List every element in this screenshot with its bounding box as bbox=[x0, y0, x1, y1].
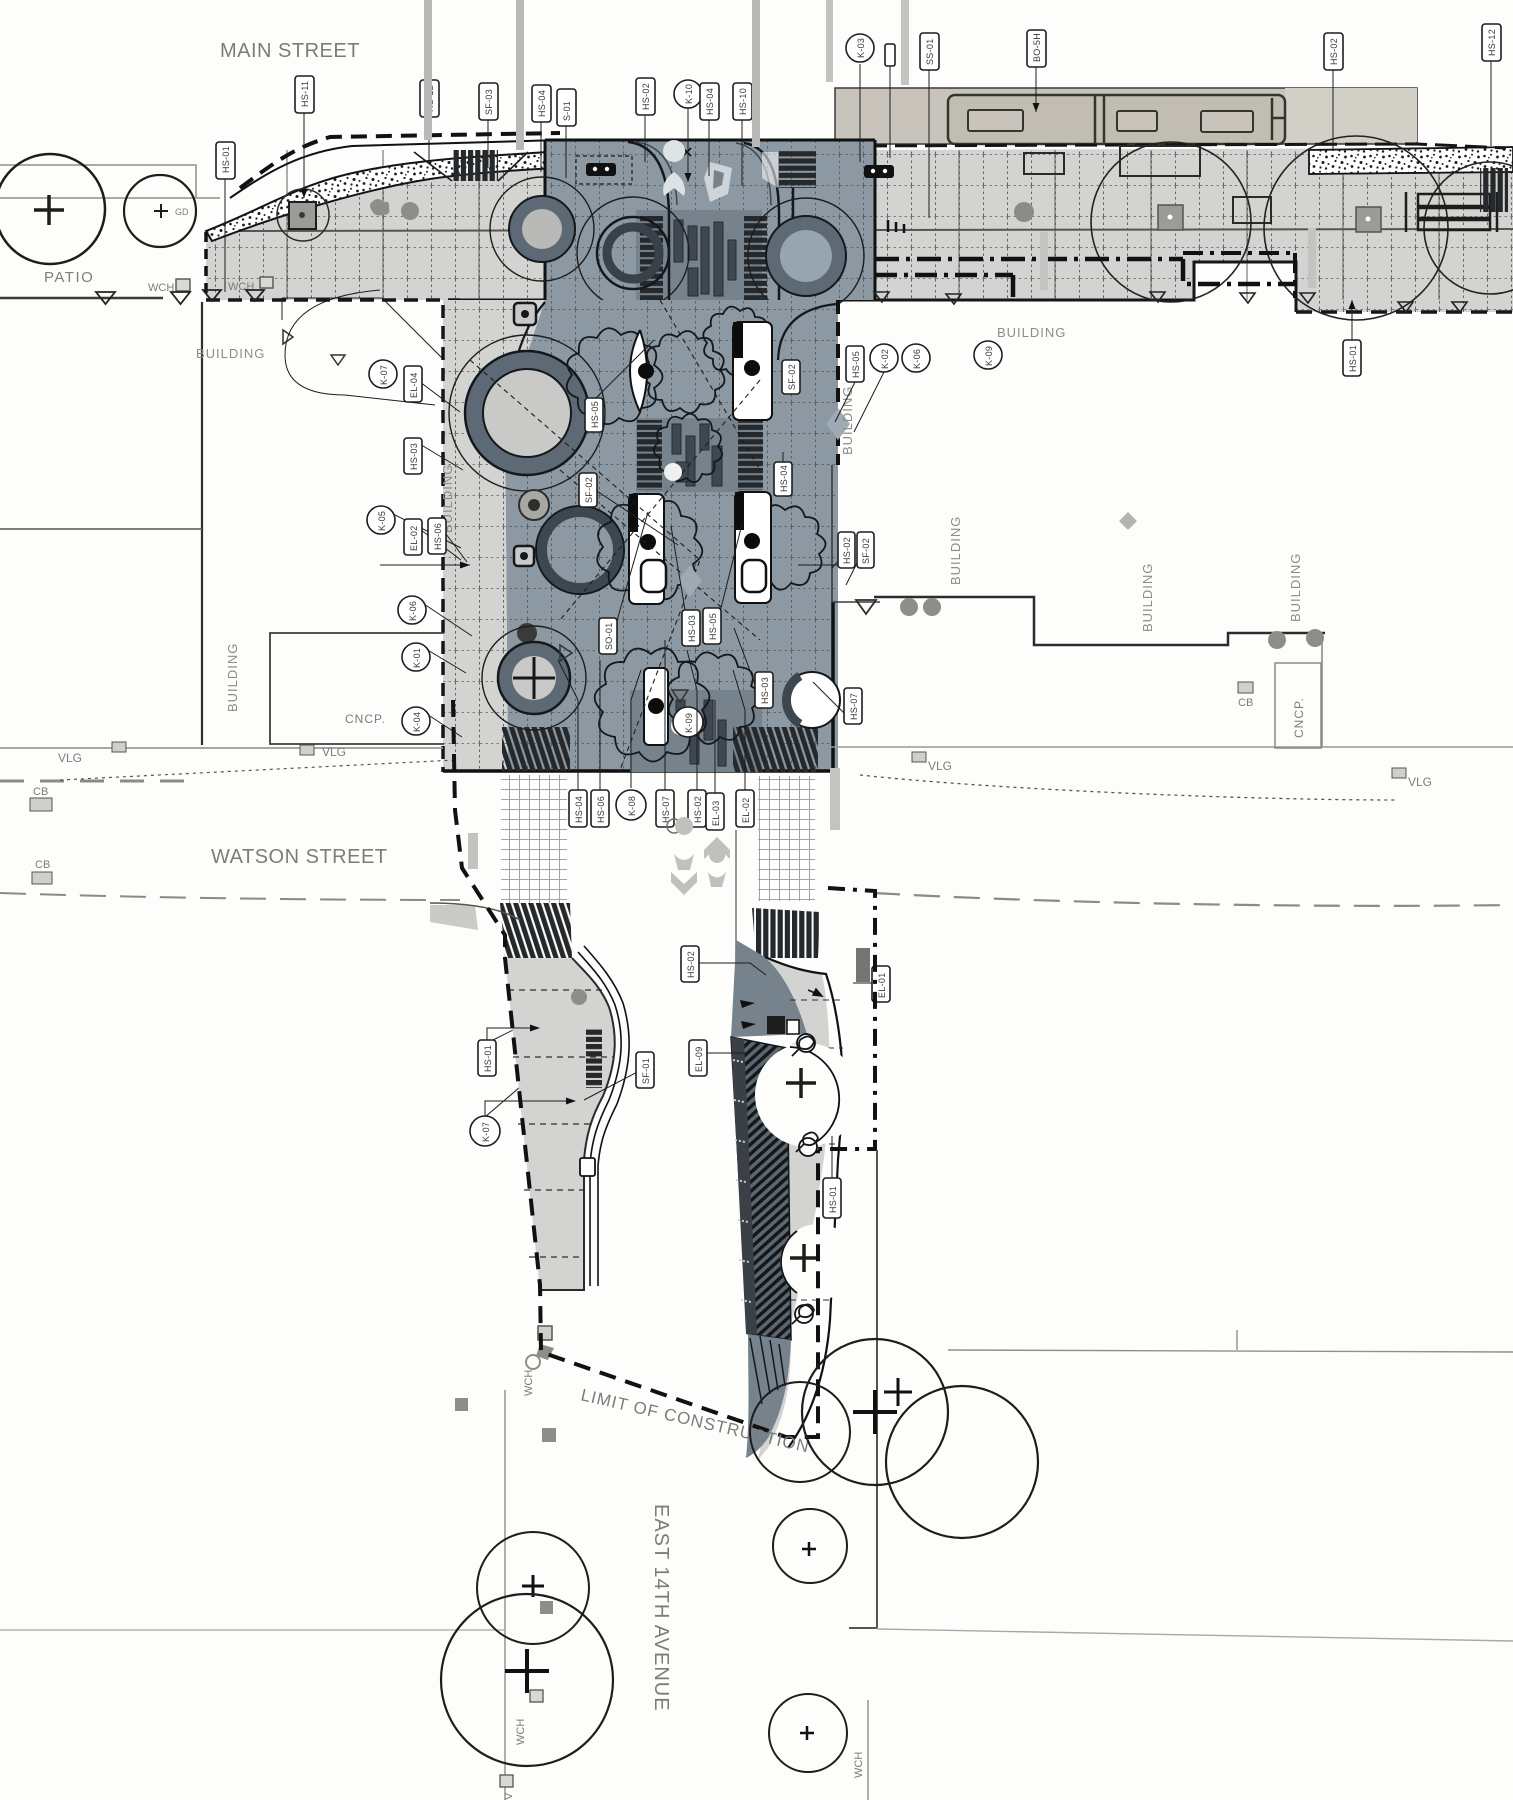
svg-text:K-09: K-09 bbox=[984, 346, 994, 366]
svg-text:EL-02: EL-02 bbox=[409, 525, 419, 551]
svg-text:HS-06: HS-06 bbox=[433, 523, 443, 550]
svg-text:BUILDING: BUILDING bbox=[225, 643, 240, 712]
svg-text:BUILDING: BUILDING bbox=[997, 325, 1066, 340]
svg-text:HS-05: HS-05 bbox=[851, 351, 861, 378]
svg-text:SS-01: SS-01 bbox=[925, 38, 935, 65]
svg-text:SF-02: SF-02 bbox=[861, 538, 871, 564]
svg-text:SO-01: SO-01 bbox=[604, 622, 614, 650]
svg-text:SF-02: SF-02 bbox=[787, 364, 797, 390]
svg-text:HS-01: HS-01 bbox=[1348, 345, 1358, 372]
svg-text:K-07: K-07 bbox=[379, 365, 389, 385]
svg-text:VLG: VLG bbox=[322, 745, 346, 759]
svg-text:HS-03: HS-03 bbox=[760, 677, 770, 704]
svg-text:K-03: K-03 bbox=[856, 38, 866, 58]
svg-text:HS-04: HS-04 bbox=[779, 465, 789, 492]
svg-text:PATIO: PATIO bbox=[44, 269, 94, 286]
svg-text:BUILDING: BUILDING bbox=[948, 516, 963, 585]
svg-text:SF-02: SF-02 bbox=[584, 477, 594, 503]
svg-text:K-08: K-08 bbox=[627, 796, 637, 816]
svg-text:SF-03: SF-03 bbox=[484, 89, 494, 115]
svg-text:V: V bbox=[503, 1792, 515, 1800]
svg-text:GD: GD bbox=[175, 207, 189, 217]
svg-text:HS-01: HS-01 bbox=[221, 146, 231, 173]
svg-text:MAIN STREET: MAIN STREET bbox=[220, 40, 360, 62]
svg-text:HS-12: HS-12 bbox=[1487, 29, 1497, 56]
svg-text:HS-07: HS-07 bbox=[849, 693, 859, 720]
svg-text:WCH: WCH bbox=[853, 1752, 865, 1778]
svg-text:K-02: K-02 bbox=[880, 349, 890, 369]
svg-text:HS-11: HS-11 bbox=[300, 81, 310, 107]
svg-text:VLG: VLG bbox=[1408, 775, 1432, 789]
svg-text:WATSON STREET: WATSON STREET bbox=[211, 846, 388, 868]
svg-text:HS-06: HS-06 bbox=[596, 796, 606, 823]
svg-text:K-06: K-06 bbox=[408, 601, 418, 621]
svg-text:HS-03: HS-03 bbox=[409, 443, 419, 470]
svg-text:K-06: K-06 bbox=[912, 349, 922, 369]
svg-text:HS-03: HS-03 bbox=[687, 615, 697, 642]
svg-text:K-05: K-05 bbox=[377, 511, 387, 531]
svg-text:K-09: K-09 bbox=[684, 713, 694, 733]
svg-text:HS-04: HS-04 bbox=[574, 796, 584, 823]
svg-text:WCH: WCH bbox=[515, 1719, 527, 1745]
svg-text:K-07: K-07 bbox=[481, 1122, 491, 1142]
svg-text:BO-5H: BO-5H bbox=[1032, 33, 1042, 62]
svg-text:HS-01: HS-01 bbox=[483, 1045, 493, 1072]
svg-text:HS-05: HS-05 bbox=[590, 401, 600, 428]
svg-text:K-10: K-10 bbox=[684, 84, 694, 104]
svg-text:EL-01: EL-01 bbox=[877, 972, 887, 998]
svg-text:WCH: WCH bbox=[523, 1370, 535, 1396]
svg-text:BUILDING: BUILDING bbox=[1140, 563, 1155, 632]
svg-text:HS-05: HS-05 bbox=[708, 613, 718, 640]
svg-text:EL-09: EL-09 bbox=[694, 1046, 704, 1072]
svg-text:K-01: K-01 bbox=[412, 648, 422, 668]
svg-text:SF-01: SF-01 bbox=[641, 1058, 651, 1084]
svg-text:HS-01: HS-01 bbox=[828, 1186, 838, 1213]
svg-text:EL-03: EL-03 bbox=[711, 800, 721, 826]
svg-text:HS-02: HS-02 bbox=[1329, 38, 1339, 65]
svg-text:HS-02: HS-02 bbox=[842, 537, 852, 564]
svg-text:HS-02: HS-02 bbox=[693, 796, 703, 823]
svg-text:EAST 14TH AVENUE: EAST 14TH AVENUE bbox=[650, 1504, 672, 1712]
svg-text:CNCP.: CNCP. bbox=[1292, 697, 1306, 738]
svg-text:HS-02: HS-02 bbox=[686, 951, 696, 978]
svg-text:HS-10: HS-10 bbox=[738, 88, 748, 115]
svg-text:S-01: S-01 bbox=[562, 101, 572, 121]
svg-text:BUILDING: BUILDING bbox=[196, 346, 265, 361]
svg-text:CB: CB bbox=[35, 859, 50, 871]
svg-text:WCH: WCH bbox=[228, 281, 254, 293]
svg-text:CNCP.: CNCP. bbox=[345, 712, 386, 726]
svg-text:EL-04: EL-04 bbox=[409, 372, 419, 398]
svg-text:VLG: VLG bbox=[928, 759, 952, 773]
svg-text:HS-02: HS-02 bbox=[641, 83, 651, 110]
svg-text:HS-07: HS-07 bbox=[661, 796, 671, 823]
svg-text:HS-04: HS-04 bbox=[705, 88, 715, 115]
svg-text:CB: CB bbox=[33, 786, 48, 798]
svg-text:CB: CB bbox=[1238, 697, 1253, 709]
svg-text:HS-04: HS-04 bbox=[537, 90, 547, 117]
svg-text:BUILDING: BUILDING bbox=[1288, 553, 1303, 622]
svg-text:EL-02: EL-02 bbox=[741, 797, 751, 823]
svg-text:VLG: VLG bbox=[58, 751, 82, 765]
svg-text:K-04: K-04 bbox=[412, 712, 422, 732]
